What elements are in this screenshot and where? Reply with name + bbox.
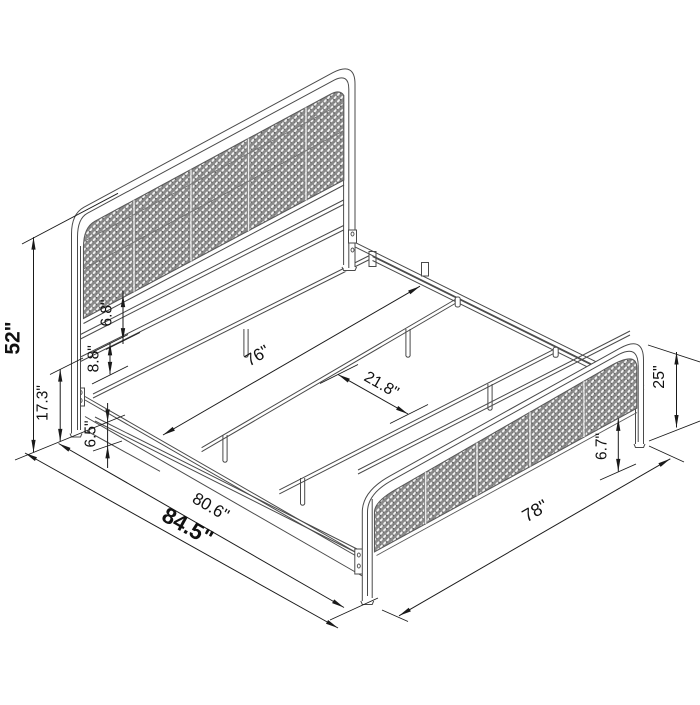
svg-text:6.8": 6.8" [99,299,116,326]
svg-text:8.8": 8.8" [86,345,103,372]
svg-text:52": 52" [2,321,25,354]
svg-text:25": 25" [651,365,668,388]
svg-text:6.7": 6.7" [594,433,611,460]
svg-text:17.3": 17.3" [35,385,52,421]
svg-text:6.5": 6.5" [83,420,100,447]
